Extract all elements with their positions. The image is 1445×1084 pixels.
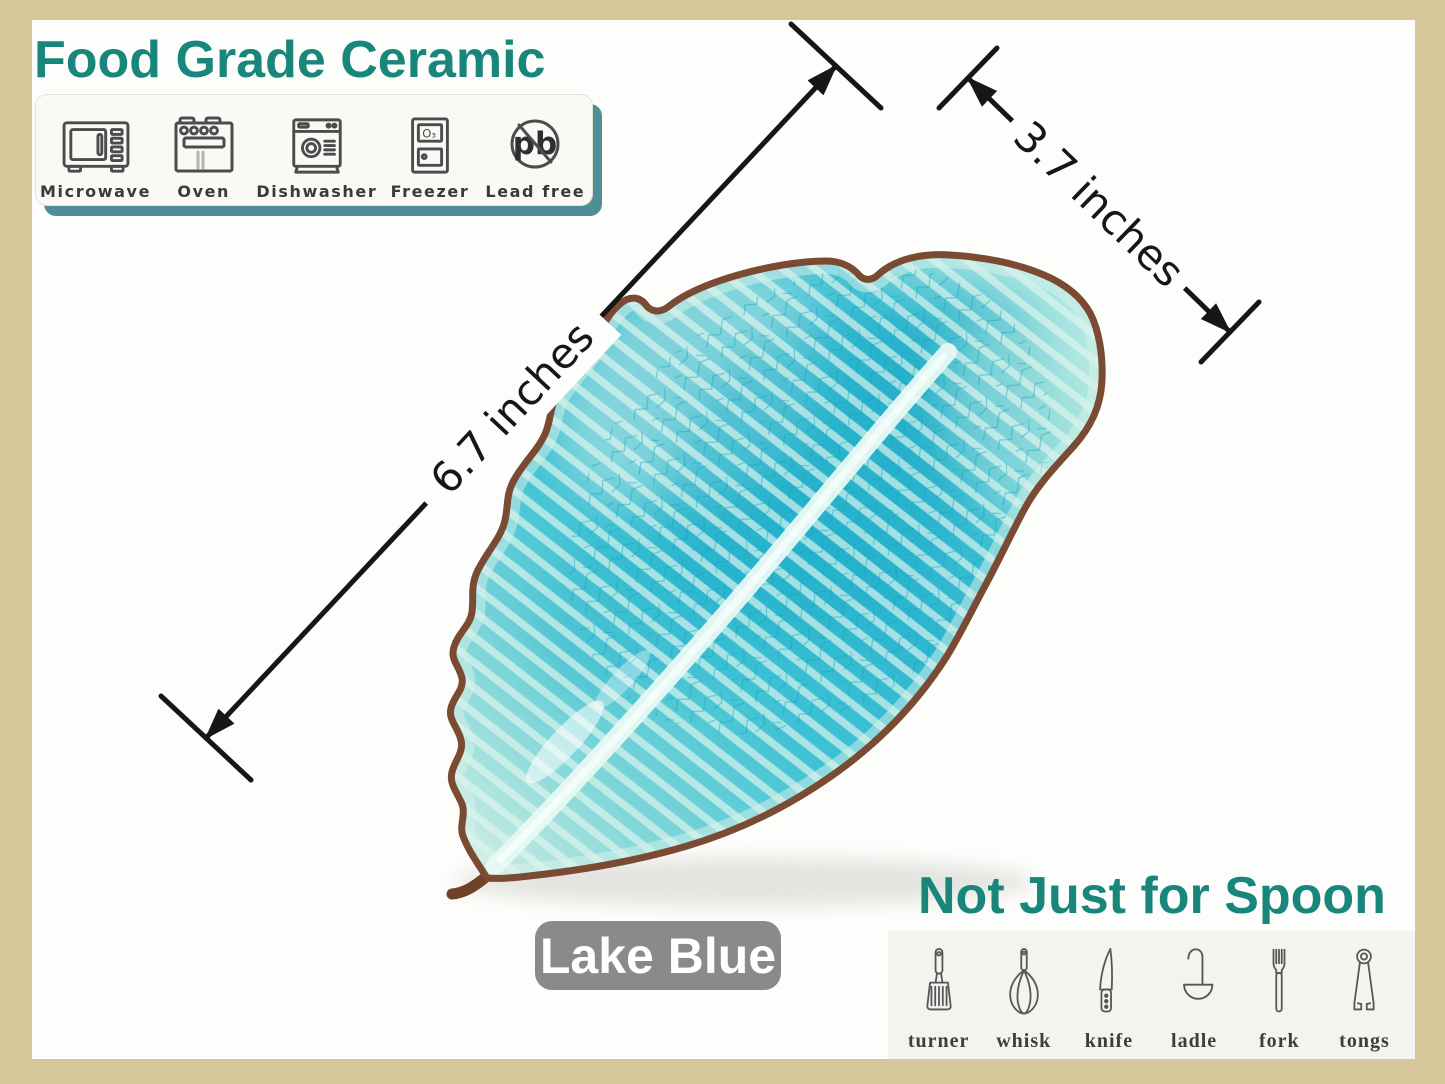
leaf-plate-photo <box>450 171 1179 894</box>
safety-label: Dishwasher <box>256 182 377 201</box>
turner-icon <box>917 936 961 1028</box>
utensil-label: ladle <box>1171 1030 1217 1053</box>
heading-food-grade-ceramic: Food Grade Ceramic <box>34 30 545 90</box>
oven-icon <box>172 113 236 179</box>
safety-item-oven: Oven <box>151 101 256 201</box>
whisk-icon <box>1002 936 1046 1028</box>
utensil-item-ladle: ladle <box>1152 936 1237 1053</box>
utensil-label: whisk <box>996 1030 1051 1053</box>
fork-icon <box>1257 936 1301 1028</box>
utensil-item-knife: knife <box>1066 936 1151 1053</box>
utensil-item-whisk: whisk <box>981 936 1066 1053</box>
safety-label: Lead free <box>485 182 585 201</box>
utensil-item-fork: fork <box>1237 936 1322 1053</box>
safety-label: Freezer <box>391 182 470 201</box>
freezer-icon-text: O₃ <box>422 126 436 140</box>
utensil-label: knife <box>1085 1030 1133 1053</box>
safety-item-microwave: Microwave <box>40 101 151 201</box>
safety-feature-bar: Microwave Oven <box>35 94 593 206</box>
safety-label: Oven <box>177 182 230 201</box>
knife-icon <box>1087 936 1131 1028</box>
dishwasher-icon <box>288 113 346 179</box>
utensil-item-turner: turner <box>896 936 981 1053</box>
heading-not-just-for-spoon: Not Just for Spoon <box>918 866 1386 926</box>
utensil-label: fork <box>1259 1030 1300 1053</box>
utensil-label: turner <box>908 1030 970 1053</box>
product-infographic: 6.7 inches 3.7 inches Food Grade Ceramic <box>0 0 1445 1084</box>
microwave-icon <box>60 113 132 179</box>
safety-label: Microwave <box>40 182 151 201</box>
safety-item-freezer: O₃ Freezer <box>377 101 482 201</box>
safety-item-dishwasher: Dishwasher <box>256 101 377 201</box>
tongs-icon <box>1342 936 1386 1028</box>
utensil-label: tongs <box>1339 1030 1390 1053</box>
utensil-panel: turner whisk <box>888 931 1415 1059</box>
freezer-icon: O₃ <box>407 113 453 179</box>
ladle-icon <box>1170 936 1218 1028</box>
color-badge-label: Lake Blue <box>540 927 776 985</box>
color-badge: Lake Blue <box>535 921 781 990</box>
safety-item-lead-free: pb Lead free <box>483 101 588 201</box>
utensil-item-tongs: tongs <box>1322 936 1407 1053</box>
lead-free-icon: pb <box>505 113 565 179</box>
